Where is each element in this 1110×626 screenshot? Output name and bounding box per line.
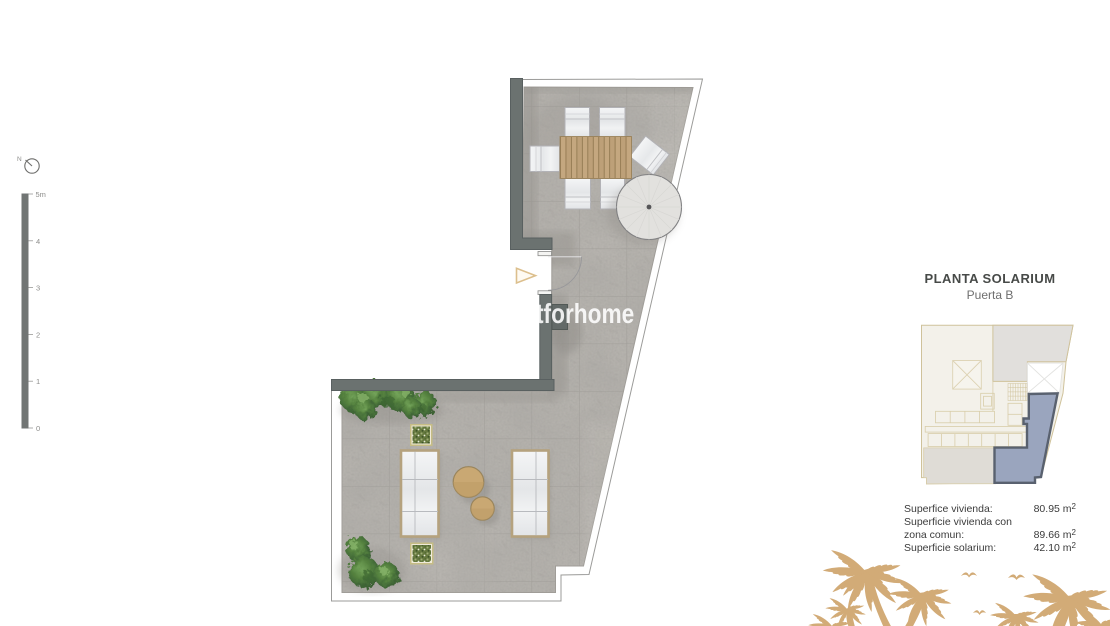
svg-text:5m: 5m bbox=[36, 190, 46, 199]
svg-text:2: 2 bbox=[36, 330, 40, 339]
svg-text:1: 1 bbox=[36, 377, 40, 386]
svg-text:3: 3 bbox=[36, 284, 40, 293]
svg-text:0: 0 bbox=[36, 424, 40, 433]
svg-text:N: N bbox=[17, 156, 22, 163]
svg-text:4: 4 bbox=[36, 237, 40, 246]
